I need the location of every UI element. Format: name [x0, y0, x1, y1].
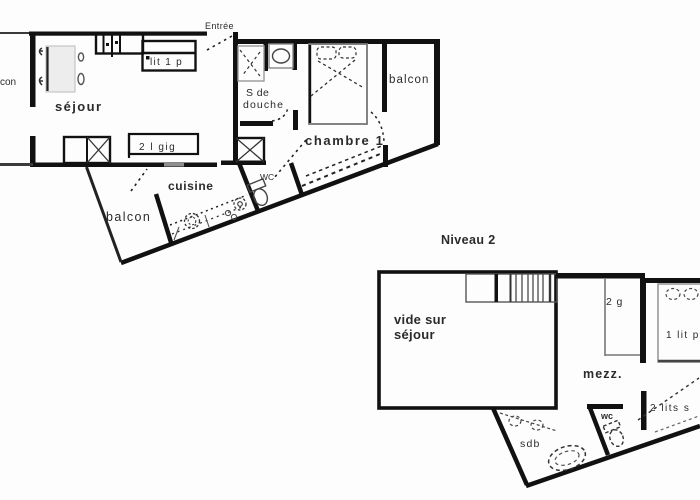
- svg-text:2 lits s: 2 lits s: [650, 403, 690, 414]
- svg-text:douche: douche: [243, 99, 284, 111]
- svg-text:balcon: balcon: [389, 74, 430, 86]
- svg-text:mezz.: mezz.: [583, 367, 623, 381]
- svg-text:WC: WC: [260, 172, 274, 182]
- svg-text:chambre 1: chambre 1: [305, 133, 384, 148]
- svg-text:2 g: 2 g: [606, 296, 623, 308]
- svg-text:Niveau 2: Niveau 2: [441, 233, 496, 247]
- svg-text:Entrée: Entrée: [205, 21, 234, 31]
- svg-text:balcon: balcon: [106, 210, 151, 224]
- svg-text:lit 1 p: lit 1 p: [150, 57, 183, 68]
- svg-text:wc: wc: [600, 411, 613, 421]
- svg-text:cuisine: cuisine: [168, 179, 214, 193]
- svg-text:S de: S de: [246, 87, 269, 99]
- svg-text:2 l gig: 2 l gig: [139, 142, 176, 153]
- svg-text:con: con: [0, 77, 16, 88]
- svg-text:séjour: séjour: [394, 327, 435, 342]
- svg-text:séjour: séjour: [55, 99, 102, 114]
- svg-text:1 lit p: 1 lit p: [666, 330, 700, 341]
- svg-text:vide sur: vide sur: [394, 312, 446, 327]
- svg-text:sdb: sdb: [520, 438, 541, 450]
